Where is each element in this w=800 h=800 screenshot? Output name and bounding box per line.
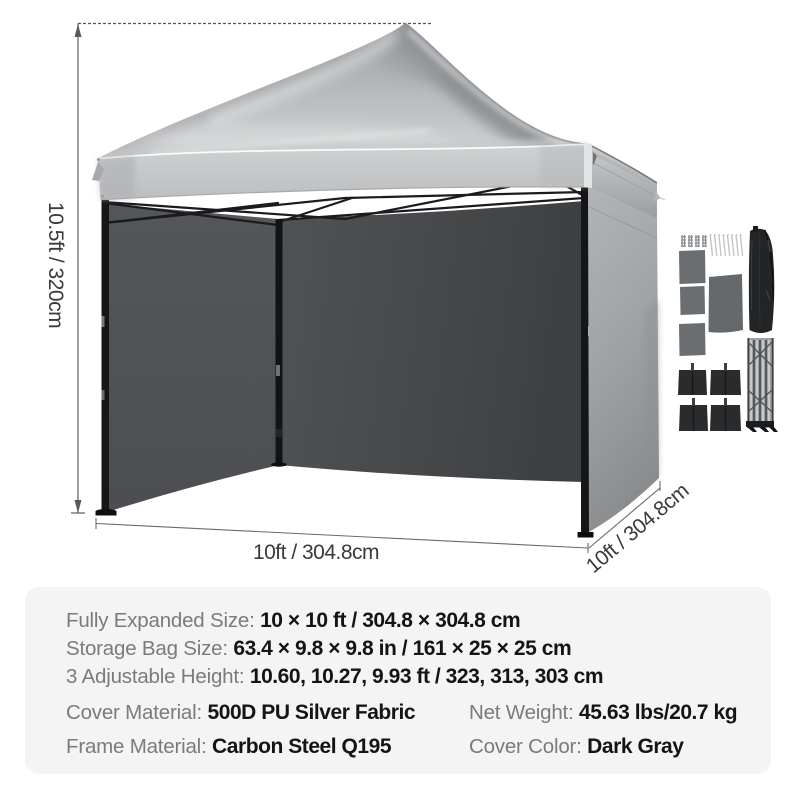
svg-text:10.5ft / 320cm: 10.5ft / 320cm: [44, 202, 67, 328]
svg-text:10ft / 304.8cm: 10ft / 304.8cm: [253, 541, 379, 564]
